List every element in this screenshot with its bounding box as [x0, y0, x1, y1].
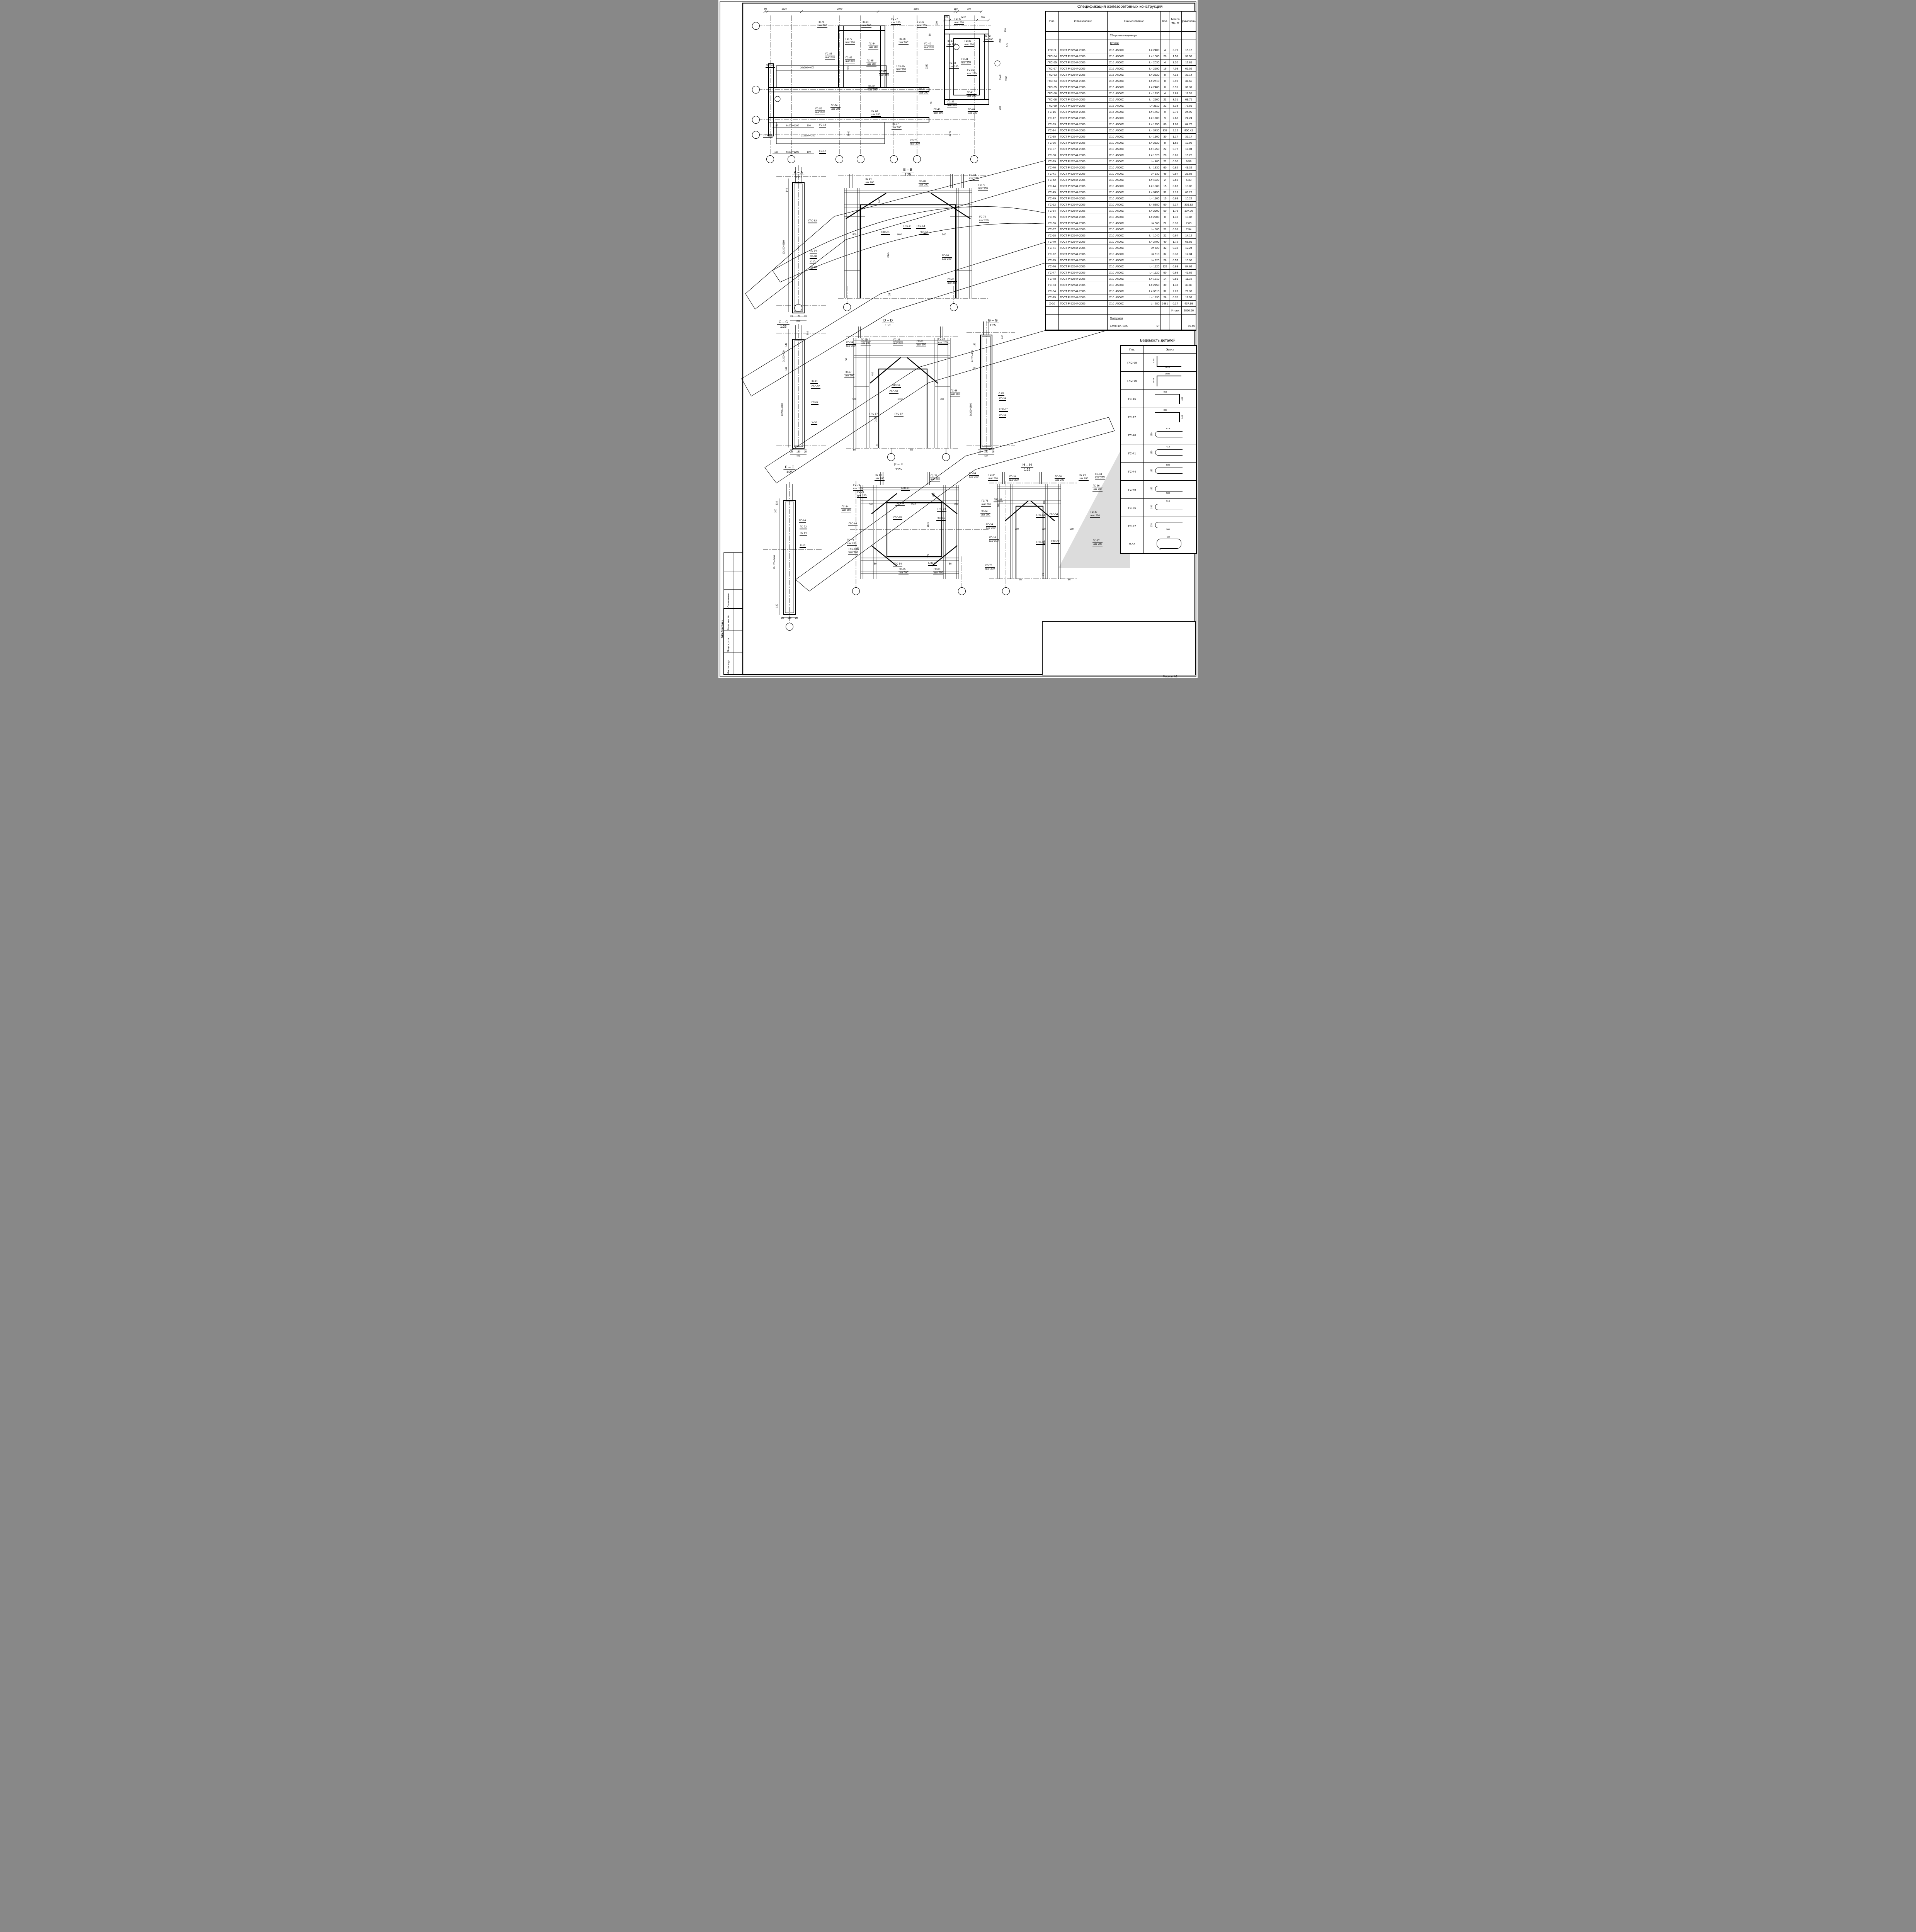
- spec-table-row: ГС-77 ГОСТ Р 52544-2006 ∅10 А500С L= 112…: [1046, 270, 1196, 276]
- details-list-row: Х-10 150 55: [1121, 535, 1196, 553]
- rebar-label: ГЛС-64: [848, 522, 858, 526]
- rebar-label: ГС-77 шаг 200: [845, 38, 855, 45]
- rebar-label: ГС-36 шаг 200: [1092, 485, 1103, 492]
- dimension-label: 900: [967, 8, 971, 10]
- spec-table-row: ГС-17 ГОСТ Р 52544-2006 ∅16 А500С L= 170…: [1046, 115, 1196, 121]
- dimension-label: 25: [1043, 573, 1045, 576]
- section-title: B – B 1:25: [902, 168, 914, 176]
- dimension-label: 200: [984, 456, 988, 458]
- dimension-label: 25: [804, 451, 807, 453]
- spec-table-row: ГС-65 ГОСТ Р 52544-2006 ∅10 А500С L= 220…: [1046, 214, 1196, 220]
- dimension-label: 500: [869, 503, 873, 506]
- dimension-label: 50: [857, 548, 859, 550]
- section-title: C – C 1:25: [777, 320, 790, 328]
- dimension-label: 2x200=400: [972, 350, 974, 362]
- rebar-label: ГС-67: [811, 401, 818, 405]
- dimension-label: 130: [776, 604, 778, 608]
- axis-bubble: [752, 116, 760, 124]
- rebar-sketch: 150 510: [1145, 500, 1195, 515]
- axis-bubble: [835, 155, 843, 163]
- dimension-label: 20x200=4000: [800, 67, 815, 69]
- spec-table-row: ГС-45 ГОСТ Р 52544-2006 ∅10 А500С L= 345…: [1046, 189, 1196, 196]
- rebar-label: ГС-64 шаг 200: [868, 43, 878, 49]
- rebar-label: ГС-85 шаг 200: [933, 568, 943, 575]
- dimension-label: 200: [796, 456, 800, 458]
- rebar-label: ГС-78 шаг 200: [919, 180, 929, 187]
- rebar-label: ГЛС-63: [808, 219, 817, 223]
- dimension-label: 2x200=400: [783, 350, 785, 362]
- rebar-sketch: 150 500: [1145, 482, 1195, 497]
- dimension-label: 150: [788, 617, 791, 619]
- dimension-label: 1550: [999, 75, 1002, 80]
- dimension-label: 480: [872, 372, 874, 376]
- rebar-label: ГС-64 шаг 200: [861, 21, 871, 28]
- rebar-label: ГЛС-57: [869, 413, 878, 417]
- rebar-label: ГС-68 шаг 200: [947, 278, 957, 285]
- details-list-row: ГС-40 150 614: [1121, 426, 1196, 444]
- detail-callout: [995, 61, 1001, 66]
- rebar-label: ГС-40 шаг 200: [924, 43, 934, 49]
- dimension-label: 190: [774, 125, 778, 127]
- dimension-label: 500: [1015, 528, 1019, 531]
- rebar-label: ГС-77 шаг 200: [892, 123, 902, 130]
- rebar-label: ГС-41 шаг 200: [967, 91, 977, 98]
- dimension-label: 90: [764, 8, 767, 10]
- dimension-label: 1400: [897, 234, 902, 236]
- dimension-label: 2200: [847, 65, 850, 70]
- spec-table-row: ГС-38 ГОСТ Р 52544-2006 ∅10 А500С L= 132…: [1046, 152, 1196, 158]
- rebar-label: ГС-72: [800, 526, 807, 529]
- dimension-label: 50: [1068, 579, 1071, 581]
- rebar-label: ГЛС-54: [895, 502, 905, 506]
- spec-table-row: ГС-66 ГОСТ Р 52544-2006 ∅10 А500С L= 560…: [1046, 220, 1196, 226]
- details-list: Поз. Эскиз ГЛС-68 1065 1070 ГЛС-69: [1120, 345, 1197, 554]
- axis-bubble: [887, 453, 895, 461]
- dimension-label: 500: [954, 503, 958, 506]
- section-title: D – D 1:25: [882, 318, 894, 327]
- rebar-sketch: 130 500: [1145, 464, 1195, 479]
- spec-table-row: ГЛС-63 ГОСТ Р 52544-2006 ∅16 А500С L= 26…: [1046, 72, 1196, 78]
- spec-table-row: ГС-41 ГОСТ Р 52544-2006 ∅10 А500С L= 930…: [1046, 171, 1196, 177]
- rebar-label: ГЛС-9: [903, 225, 911, 229]
- rebar-label: ГС-68: [810, 266, 817, 270]
- spec-table-row: ГС-35 ГОСТ Р 52544-2006 ∅10 А500С L= 190…: [1046, 134, 1196, 140]
- rebar-label: ГС-40 шаг 200: [968, 108, 978, 115]
- rebar-label: ГЛС-64: [901, 487, 910, 491]
- dimension-label: 9x200=1800: [970, 403, 972, 416]
- dimension-label: 2940: [949, 131, 951, 136]
- dimension-label: 50: [949, 563, 952, 565]
- dimension-label: 200: [936, 21, 938, 25]
- axis-bubble: [950, 303, 958, 311]
- rebar-label: ГЛС-57: [999, 408, 1008, 412]
- axis-bubble: [942, 453, 950, 461]
- dimension-label: 2115: [875, 417, 877, 422]
- dimension-label: 21x200=4200: [801, 135, 815, 137]
- format-label: Формат А1: [1163, 675, 1178, 678]
- dimension-label: 50: [929, 34, 931, 36]
- axis-bubble: [958, 587, 966, 595]
- spec-table-row: ГЛС-55 ГОСТ Р 52544-2006 ∅16 А500С L= 20…: [1046, 60, 1196, 66]
- spec-table-row: Бетон кл. В25 м³ 19.45: [1046, 322, 1196, 330]
- rebar-label: ГЛС-69 шаг 200: [848, 548, 858, 555]
- dimension-label: 2840: [848, 131, 850, 136]
- axis-bubble: [1002, 587, 1010, 595]
- rebar-label: ГС-44 шаг 200: [847, 539, 857, 546]
- spec-table-row: ГС-52 ГОСТ Р 52544-2006 ∅10 А500С L= 838…: [1046, 202, 1196, 208]
- dimension-label: 480: [1043, 500, 1046, 504]
- dimension-label: 1420: [961, 17, 966, 19]
- dimension-label: 500: [933, 493, 935, 497]
- dimension-label: 570: [1006, 43, 1009, 47]
- dimension-label: 500: [853, 398, 856, 401]
- rebar-label: ГС-34: [810, 380, 818, 384]
- dimension-label: 25: [889, 293, 891, 296]
- dimension-label: 140: [786, 188, 788, 192]
- rebar-sketch: 1065 1070: [1145, 355, 1195, 370]
- rebar-label: ГЛС-54: [937, 508, 946, 512]
- spec-table-row: ГС-78 ГОСТ Р 52544-2006 ∅10 А500С L= 131…: [1046, 276, 1196, 282]
- dimension-label: 470: [927, 554, 929, 558]
- rebar-label: ГС-40 шаг 200: [933, 108, 943, 115]
- rebar-label: ГЛС-54: [893, 563, 902, 566]
- axis-bubble: [786, 623, 793, 631]
- rebar-label: ГС-34 шаг 200: [1009, 475, 1019, 482]
- rebar-label: ГС-38 шаг 200: [893, 338, 903, 345]
- dimension-label: 190: [774, 151, 778, 153]
- software-label: Tekla Structures: [721, 620, 724, 638]
- rebar-label: ГЛС-66: [994, 498, 1003, 502]
- section-title: G – G 1:25: [986, 318, 999, 327]
- rebar-label: ГС-34 шаг 200: [969, 174, 979, 181]
- axis-bubble: [752, 22, 760, 30]
- spec-table-row: ГС-33 ГОСТ Р 52544-2006 ∅10 А500С L= 175…: [1046, 121, 1196, 128]
- details-list-row: ГЛС-68 1065 1070: [1121, 354, 1196, 372]
- rebar-label: ГС-76 шаг 200: [830, 104, 841, 111]
- dimension-label: 200: [999, 106, 1002, 110]
- details-list-row: ГС-44 130 500: [1121, 463, 1196, 481]
- dimension-label: 25: [790, 451, 793, 453]
- rebar-label: ГЛС-55: [889, 390, 898, 394]
- spec-table-row: ГС-64 ГОСТ Р 52544-2006 ∅10 А500С L= 290…: [1046, 208, 1196, 214]
- spec-table-row: ГС-67 ГОСТ Р 52544-2006 ∅10 А500С L= 580…: [1046, 226, 1196, 233]
- spec-table-row: ГС-84 ГОСТ Р 52544-2006 ∅10 А500С L= 361…: [1046, 288, 1196, 294]
- rebar-label: ГС-85 шаг 200: [898, 568, 909, 575]
- rebar-sketch: 150 55: [1145, 536, 1195, 552]
- rebar-label: ГЛС-54: [892, 384, 901, 388]
- axis-bubble: [788, 155, 795, 163]
- spec-table-row: ГС-49 ГОСТ Р 52544-2006 ∅10 А500С L= 110…: [1046, 196, 1196, 202]
- details-list-row: ГЛС-69 1070 1080: [1121, 372, 1196, 390]
- dimension-label: 50: [846, 358, 848, 361]
- rebar-label: Х-10: [810, 260, 816, 264]
- spec-table-row: Итого: 2850.56: [1046, 307, 1196, 315]
- rebar-label: ГС-41 шаг 200: [919, 88, 929, 95]
- dimension-label: 150: [1005, 28, 1007, 32]
- spec-table-row: ГС-83 ГОСТ Р 52544-2006 ∅10 А500С L= 215…: [1046, 282, 1196, 288]
- dimension-label: 500: [853, 234, 856, 236]
- dimension-label: 25: [790, 316, 793, 318]
- dimension-label: 200: [999, 39, 1002, 43]
- dimension-label: 25: [781, 617, 784, 619]
- dimension-label: 6x200=1200: [786, 151, 799, 153]
- rebar-label: ГС-41 шаг 200: [961, 58, 971, 65]
- dimension-label: 2950: [914, 8, 919, 10]
- rebar-label: ГЛС-65: [936, 517, 946, 521]
- spec-table-row: ГС-70 ГОСТ Р 52544-2006 ∅10 А500С L= 279…: [1046, 239, 1196, 245]
- stamp-inv: Инв. № подл.: [728, 660, 730, 674]
- spec-table: Поз. Обозначение Наименование Кол. Масса…: [1045, 11, 1196, 331]
- rebar-label: ГЛС-68: [766, 64, 775, 68]
- dimension-label: 500: [1070, 528, 1074, 531]
- rebar-label: ГС-34: [999, 397, 1006, 401]
- rebar-label: ГС-40 шаг 200: [1090, 511, 1100, 518]
- rebar-label: ГЛС-55 шаг 200: [896, 65, 906, 72]
- dimension-label: 50: [998, 504, 1000, 507]
- rebar-label: ГС-70 шаг 200: [910, 139, 920, 146]
- rebar-label: ГС-67 шаг 200: [844, 371, 854, 378]
- dimension-label: 25: [876, 444, 879, 447]
- stamp-podp: Подп. и дата: [728, 638, 730, 652]
- rebar-label: ГС-37 шаг 200: [1092, 539, 1103, 546]
- section-title: E – E 1:25: [783, 465, 795, 474]
- rebar-label: ГС-65 шаг 200: [916, 340, 926, 347]
- dimension-label: 1030: [897, 398, 902, 401]
- rebar-label: ГС-84 шаг 200: [875, 474, 885, 481]
- rebar-label: ГС-42 шаг 200: [984, 35, 994, 42]
- rebar-label: ГЛС-63: [919, 231, 929, 235]
- spec-table-row: ГС-44 ГОСТ Р 52544-2006 ∅10 А500С L= 108…: [1046, 183, 1196, 189]
- dimension-label: 500: [942, 234, 946, 236]
- dimension-label: 1320: [781, 8, 786, 10]
- rebar-label: ГЛС-69: [763, 134, 773, 138]
- rebar-label: ГЛС-54: [916, 225, 926, 229]
- stamp-vzam: Взам. инв. №: [728, 616, 730, 630]
- dimension-label: 500: [940, 398, 944, 401]
- rebar-label: ГС-33 шаг 200: [947, 100, 957, 107]
- rebar-label: ГЛС-63: [881, 231, 890, 235]
- dimension-label: 1950: [1006, 76, 1008, 81]
- spec-table-row: ГС-72 ГОСТ Р 52544-2006 ∅10 А500С L= 610…: [1046, 251, 1196, 257]
- dimension-label: 680: [1002, 335, 1004, 339]
- spec-table-row: ГС-34 ГОСТ Р 52544-2006 ∅10 А500С L= 343…: [1046, 128, 1196, 134]
- dimension-label: 50: [910, 449, 913, 451]
- dimension-label: 25: [992, 451, 995, 453]
- stamp-soglasovano: Согласовано: [728, 594, 730, 607]
- dimension-label: 200: [796, 320, 800, 323]
- rebar-label: ГЛС-54: [1036, 514, 1045, 518]
- spec-table-row: ГЛС-69 ГОСТ Р 52544-2006 ∅16 А500С L= 21…: [1046, 103, 1196, 109]
- dimension-label: 6x200=1200: [786, 125, 799, 127]
- dimension-label: 140: [974, 343, 976, 347]
- spec-table-body: Сборочные единицы Детали: [1046, 32, 1196, 330]
- rebar-label: ГС-39: [999, 414, 1006, 418]
- dimension-label: 2350: [926, 64, 928, 69]
- dimension-label: 190: [807, 151, 811, 153]
- spec-table-row: ГЛС-68 ГОСТ Р 52544-2006 ∅16 А500С L= 21…: [1046, 97, 1196, 103]
- spec-table-row: ГС-39 ГОСТ Р 52544-2006 ∅10 А500С L= 480…: [1046, 158, 1196, 165]
- rebar-label: ГС-76 шаг 200: [898, 38, 909, 45]
- rebar-label: ГС-65 шаг 200: [879, 70, 889, 77]
- rebar-label: ГС-38 шаг 200: [1055, 475, 1065, 482]
- dimension-label: 199: [785, 367, 788, 371]
- dimension-label: 199: [974, 367, 976, 371]
- rebar-label: ГС-68: [810, 255, 817, 259]
- rebar-sketch: 863 880: [1145, 409, 1195, 425]
- rebar-label: ГС-49 шаг 200: [917, 21, 927, 28]
- spec-table-row: ГЛС-9 ГОСТ Р 52544-2006 ∅16 А500С L= 240…: [1046, 47, 1196, 53]
- rebar-label: ГС-33 шаг 200: [949, 62, 959, 69]
- rebar-label: ГС-34 шаг 200: [841, 505, 851, 512]
- details-list-row: ГС-17 863 880: [1121, 408, 1196, 426]
- spec-table-row: ГЛС-64 ГОСТ Р 52544-2006 ∅16 А500С L= 25…: [1046, 78, 1196, 84]
- rebar-label: ГС-75 шаг 200: [930, 474, 940, 481]
- rebar-label: ГС-70 шаг 200: [979, 216, 989, 223]
- spec-table-header: Поз. Обозначение Наименование Кол. Масса…: [1046, 12, 1196, 32]
- rebar-sketch: 150 414: [1145, 446, 1195, 461]
- dimension-label: 12x200=2399: [783, 240, 785, 255]
- dimension-label: 2940: [837, 8, 842, 10]
- details-list-row: ГС-41 150 414: [1121, 444, 1196, 463]
- spec-table-row: ГС-16 ГОСТ Р 52544-2006 ∅16 А500С L= 175…: [1046, 109, 1196, 115]
- dimension-label: 1510: [911, 503, 916, 506]
- dimension-label: 190: [807, 125, 811, 127]
- rebar-label: ГС-39 шаг 200: [989, 536, 999, 543]
- rebar-label: ГЛС-57: [1051, 540, 1060, 544]
- rebar-label: ГС-33 шаг 200: [964, 40, 974, 47]
- spec-table-row: Х-10 ГОСТ Р 52544-2006 ∅10 А500С L= 280 …: [1046, 301, 1196, 307]
- axis-bubble: [970, 155, 978, 163]
- dimension-label: 25: [795, 617, 798, 619]
- dimension-label: 130: [776, 501, 778, 505]
- detail-callout: [775, 96, 781, 102]
- axis-bubble: [890, 155, 898, 163]
- rebar-label: ГЛС-65: [893, 516, 902, 520]
- spec-table-row: Материал: [1046, 315, 1196, 322]
- axis-bubble: [913, 155, 921, 163]
- details-list-row: ГС-16 888 908: [1121, 390, 1196, 408]
- dimension-label: 2125: [887, 252, 890, 257]
- dimension-label: 50: [853, 449, 856, 451]
- spec-table-row: ГС-68 ГОСТ Р 52544-2006 ∅10 А500С L= 104…: [1046, 233, 1196, 239]
- title-block: [1042, 621, 1196, 675]
- spec-table-row: ГС-75 ГОСТ Р 52544-2006 ∅10 А500С L= 920…: [1046, 257, 1196, 264]
- rebar-label: ГС-52 шаг 200: [815, 107, 825, 114]
- rebar-label: ГС-76 шаг 200: [817, 21, 827, 28]
- section-title: F – F 1:25: [893, 463, 904, 471]
- dimension-label: 9x200=1800: [781, 403, 784, 416]
- rebar-label: ГС-72 шаг 200: [853, 484, 863, 491]
- rebar-label: ГС-84 шаг 200: [980, 510, 990, 517]
- spec-table-title: Спецификация железобетонных конструкций: [1045, 4, 1195, 9]
- details-list-row: ГС-76 150 510: [1121, 499, 1196, 517]
- dimension-label: 1510: [927, 522, 929, 527]
- dimension-label: 110: [954, 8, 958, 10]
- dimension-label: 680: [807, 331, 809, 335]
- dimension-label: 500: [879, 199, 881, 203]
- spec-table-row: ГС-40 ГОСТ Р 52544-2006 ∅10 А500С L= 133…: [1046, 165, 1196, 171]
- dimension-label: 12x200=2400: [774, 555, 776, 570]
- dimension-label: 50: [874, 563, 877, 565]
- rebar-label: ГС-84: [799, 519, 806, 523]
- rebar-label: ГС-84: [800, 532, 807, 536]
- details-list-row: ГС-77 170 500: [1121, 517, 1196, 535]
- rebar-label: ГС-66 шаг 200: [950, 389, 960, 396]
- dimension-label: 50: [1019, 579, 1022, 581]
- dimension-label: 150: [796, 451, 800, 453]
- rebar-label: ГС-34 шаг 200: [846, 341, 856, 348]
- details-list-row: ГС-49 150 500: [1121, 481, 1196, 499]
- spec-table-row: ГЛС-54 ГОСТ Р 52544-2006 ∅16 А500С L= 10…: [1046, 53, 1196, 60]
- details-list-title: Ведомость деталей: [1120, 338, 1195, 343]
- drawing-sheet: ГС-76 шаг 200 ГС-64 шаг 200 ГС-77 шаг 20…: [718, 0, 1198, 678]
- rebar-label: ГС-34 шаг 200: [1095, 473, 1105, 480]
- rebar-label: ГС-52 шаг 200: [868, 85, 878, 92]
- spec-table-row: ГС-36 ГОСТ Р 52544-2006 ∅10 А500С L= 262…: [1046, 140, 1196, 146]
- rebar-label: ГЛС-57: [894, 413, 904, 417]
- rebar-label: Х-10: [811, 421, 817, 425]
- rebar-label: ГЛС-54: [928, 562, 937, 566]
- rebar-label: ГС-70 шаг 200: [985, 564, 995, 571]
- dimension-label: 2115: [1043, 541, 1046, 546]
- rebar-label: ГС-38 шаг 200: [861, 338, 871, 345]
- rebar-label: ГС-34 шаг 200: [938, 338, 948, 345]
- spec-table-row: ГС-85 ГОСТ Р 52544-2006 ∅10 А500С L= 113…: [1046, 294, 1196, 301]
- axis-bubble: [795, 304, 802, 312]
- rebar-label: ГС-71 шаг 200: [981, 500, 991, 507]
- rebar-label: ГС-34 шаг 200: [986, 523, 996, 530]
- rebar-label: ГЛС-57: [811, 385, 820, 389]
- rebar-sketch: 150 614: [1145, 427, 1195, 443]
- dimension-label: 150: [931, 102, 933, 105]
- rebar-label: ГС-34 шаг 200: [1079, 474, 1089, 481]
- rebar-label: ГС-83 шаг 200: [825, 53, 835, 60]
- dimension-label: 50: [857, 495, 859, 498]
- section-title: H – H 1:25: [1021, 463, 1033, 471]
- rebar-sketch: 170 500: [1145, 518, 1195, 534]
- rebar-label: Х-10: [998, 392, 1004, 396]
- rebar-label: ГС-16: [819, 124, 826, 128]
- rebar-label: ГС-35 шаг 200: [967, 69, 977, 76]
- spec-table-row: Детали: [1046, 39, 1196, 47]
- rebar-label: ГС-45 шаг 200: [866, 60, 876, 66]
- rebar-label: ГС-34: [810, 250, 817, 253]
- dimension-label: 830: [1042, 528, 1046, 531]
- section-title: А – А 1:25: [792, 170, 804, 179]
- axis-bubble: [857, 155, 864, 163]
- dimension-label: 150: [984, 451, 988, 453]
- rebar-label: ГС-34 шаг 200: [988, 474, 998, 481]
- dimension-label: 25: [804, 316, 807, 318]
- rebar-label: ГС-84 шаг 200: [969, 472, 979, 479]
- rebar-label: ГС-34 шаг 200: [864, 178, 875, 185]
- rebar-label: ГС-52 шаг 200: [871, 110, 881, 117]
- detail-callout: [954, 44, 960, 50]
- rebar-label: ГС-83 шаг 200: [845, 56, 855, 63]
- details-list-header: Поз. Эскиз: [1121, 346, 1196, 354]
- spec-table-row: ГС-71 ГОСТ Р 52544-2006 ∅10 А500С L= 620…: [1046, 245, 1196, 251]
- dimension-label: 200: [775, 509, 777, 513]
- axis-bubble: [752, 86, 760, 94]
- axis-bubble: [843, 303, 851, 311]
- spec-table-row: ГС-42 ГОСТ Р 52544-2006 ∅10 А500С L= 432…: [1046, 177, 1196, 183]
- rebar-label: ГС-70 шаг 200: [978, 184, 988, 191]
- rebar-label: ГС-17: [819, 150, 826, 154]
- spec-table-row: ГЛС-57 ГОСТ Р 52544-2006 ∅16 А500С L= 25…: [1046, 66, 1196, 72]
- axis-bubble: [752, 131, 760, 139]
- spec-table-row: ГС-76 ГОСТ Р 52544-2006 ∅10 А500С L= 112…: [1046, 264, 1196, 270]
- rebar-label: ГС-77 шаг 200: [891, 18, 901, 25]
